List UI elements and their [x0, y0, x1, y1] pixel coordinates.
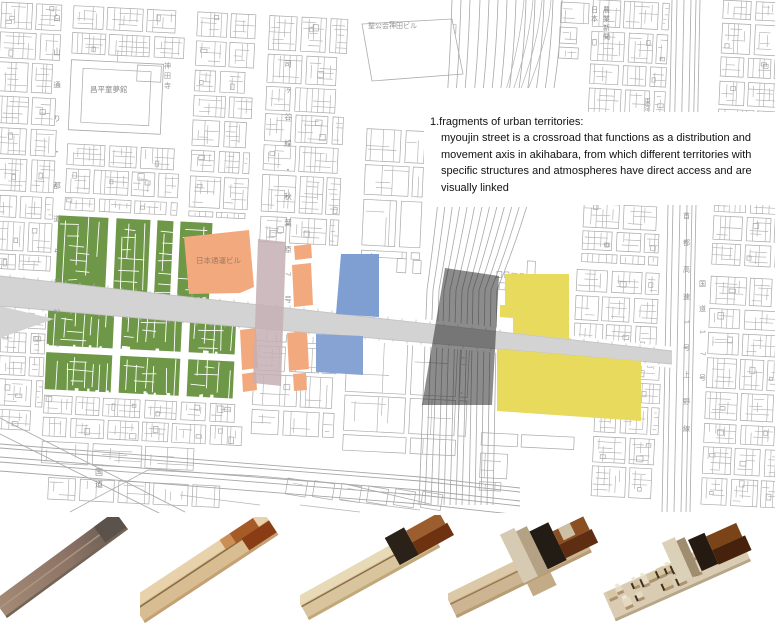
svg-text:神田寺: 神田寺 — [164, 61, 172, 92]
svg-text:昌平童夢館: 昌平童夢館 — [90, 84, 128, 94]
svg-text:国道17号: 国道17号 — [699, 280, 707, 399]
svg-text:白山通り・都道452号: 白山通り・都道452号 — [52, 13, 61, 373]
svg-text:首都高速1号上野線: 首都高速1号上野線 — [683, 211, 691, 452]
svg-text:国道: 国道 — [95, 468, 104, 492]
svg-text:日本通運ビル: 日本通運ビル — [196, 255, 241, 265]
svg-text:日本: 日本 — [591, 6, 599, 24]
svg-text:農業新聞: 農業新聞 — [603, 5, 611, 42]
svg-text:司ヶ谷線・秋葉原7号: 司ヶ谷線・秋葉原7号 — [283, 60, 292, 322]
svg-text:聖公会神田ビル: 聖公会神田ビル — [368, 21, 417, 30]
